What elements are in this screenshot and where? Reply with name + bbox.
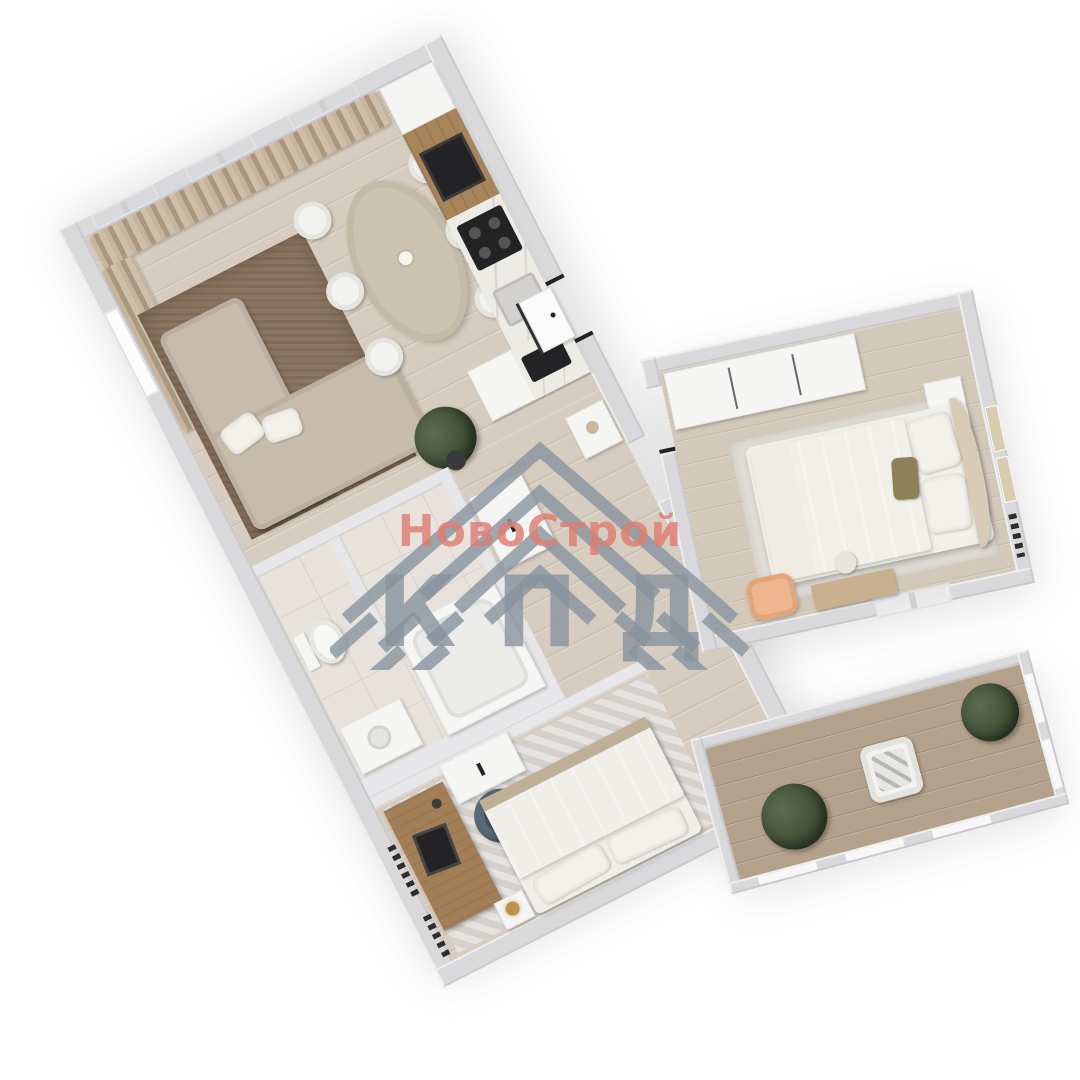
watermark-brand-text: НовоСтрой [398, 506, 682, 557]
master-pillow-2 [920, 472, 972, 534]
floorplan-render: НовоСтрой КПД [0, 0, 1080, 1080]
watermark-abbr-text: КПД [376, 556, 743, 670]
accent-pillow [891, 457, 920, 501]
